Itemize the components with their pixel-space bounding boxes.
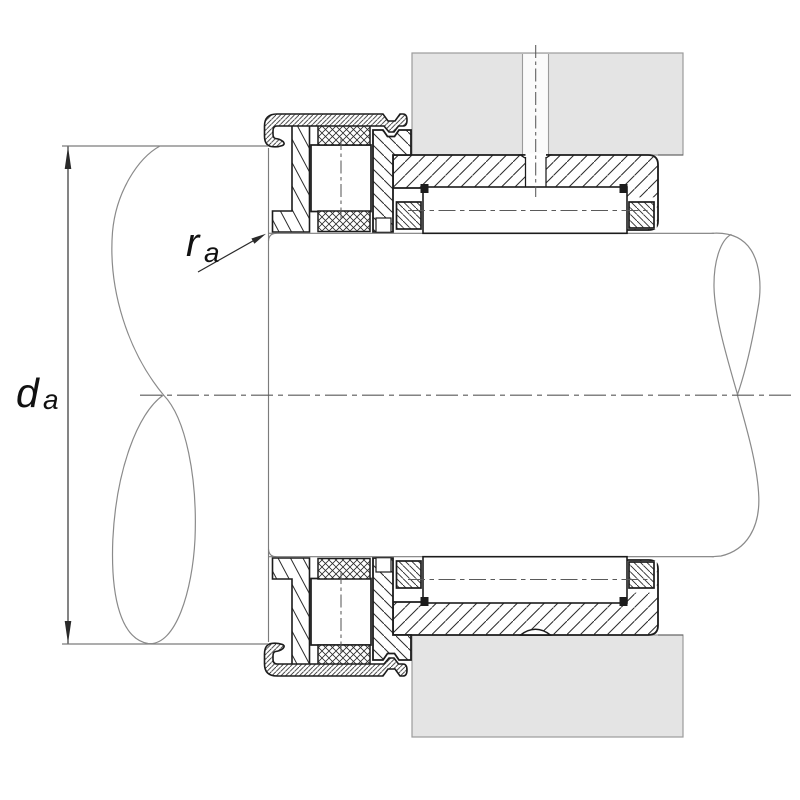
housing-bottom-block [412,635,683,737]
housing-bottom [412,635,683,737]
axial-cage-inner-rim-top [318,211,370,232]
ra-label-subscript: a [204,237,220,268]
ra-label-symbol: r [186,221,201,265]
retaining-lip-top-left [421,184,429,193]
technical-drawing-page: d a r a [0,0,800,800]
needle-cage-end-top-left [397,202,422,229]
shaft-break-left-upper [112,146,164,395]
retaining-lip-bottom-right [620,597,628,606]
needle-cage-end-bottom-right [629,562,654,588]
ra-leader-arrow [251,234,266,244]
shaft-break-right-loop-b [714,235,738,395]
da-arrow-down [65,621,72,644]
seal-notch-top [376,218,391,232]
da-label-symbol: d [16,370,40,416]
shaft-break-right-loop-a [712,233,760,394]
annotation-ra: r a [186,221,266,272]
needle-bearing-bottom [397,557,655,606]
fillet-arc-bottom [269,549,277,557]
axial-cage-inner-rim-bottom [318,559,370,580]
shaft-break-left-loop [113,395,196,644]
needle-bearing-top [397,184,655,233]
needle-cage-end-top-right [629,202,654,228]
seal-notch-bottom [376,558,391,572]
retaining-lip-bottom-left [421,597,429,606]
fillet-arc-top [269,233,277,241]
needle-cage-end-bottom-left [397,561,422,588]
axial-cage-outer-rim-top [318,126,370,146]
dimension-da: d a [16,147,71,644]
bearing-section-drawing: d a r a [0,0,800,800]
axial-cage-outer-rim-bottom [318,645,370,665]
shaft-break-right-lower [712,396,759,557]
da-label-subscript: a [43,384,59,415]
housing-top [412,53,683,156]
da-arrow-up [65,147,72,170]
retaining-lip-top-right [620,184,628,193]
